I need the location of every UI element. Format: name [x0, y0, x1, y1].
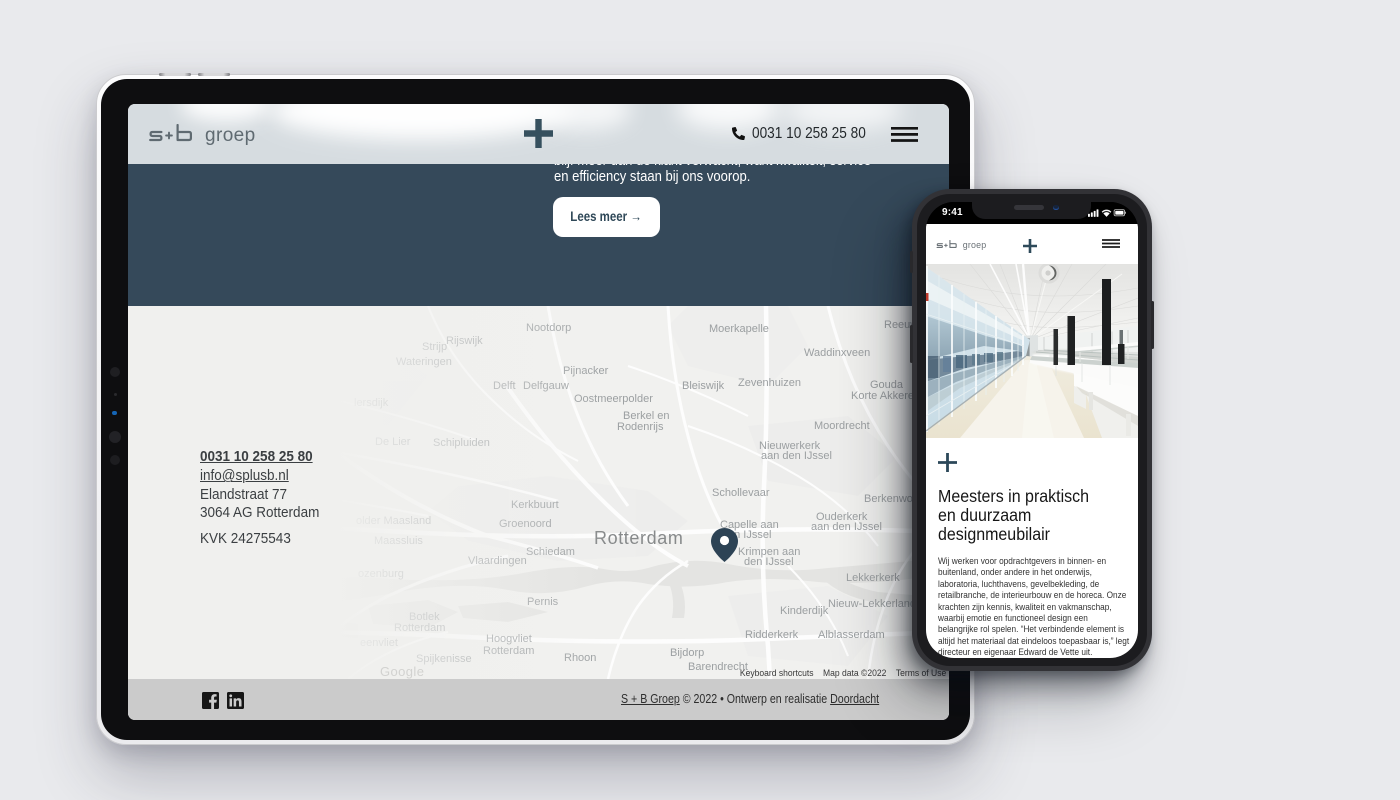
svg-text:Alblasserdam: Alblasserdam	[818, 629, 885, 641]
svg-text:groep: groep	[205, 125, 256, 146]
svg-text:Lekkerkerk: Lekkerkerk	[846, 572, 900, 584]
svg-text:Kinderdijk: Kinderdijk	[780, 605, 829, 617]
svg-text:Bijdorp: Bijdorp	[670, 647, 704, 659]
svg-text:Moerkapelle: Moerkapelle	[709, 323, 769, 335]
svg-text:Waddinxveen: Waddinxveen	[804, 347, 870, 359]
svg-text:Nieuw-Lekkerland: Nieuw-Lekkerland	[828, 598, 916, 610]
svg-text:Ridderkerk: Ridderkerk	[745, 629, 799, 641]
svg-text:Moordrecht: Moordrecht	[814, 420, 870, 432]
svg-text:Zevenhuizen: Zevenhuizen	[738, 377, 801, 389]
svg-text:Korte Akkeren: Korte Akkeren	[851, 390, 920, 402]
svg-text:Rodenrijs: Rodenrijs	[617, 421, 664, 433]
svg-text:Bleiswijk: Bleiswijk	[682, 380, 725, 392]
svg-text:den IJssel: den IJssel	[744, 556, 794, 568]
svg-text:groep: groep	[963, 240, 987, 250]
svg-text:Schollevaar: Schollevaar	[712, 487, 770, 499]
svg-text:aan den IJssel: aan den IJssel	[761, 450, 832, 462]
svg-text:aan den IJssel: aan den IJssel	[811, 521, 882, 533]
